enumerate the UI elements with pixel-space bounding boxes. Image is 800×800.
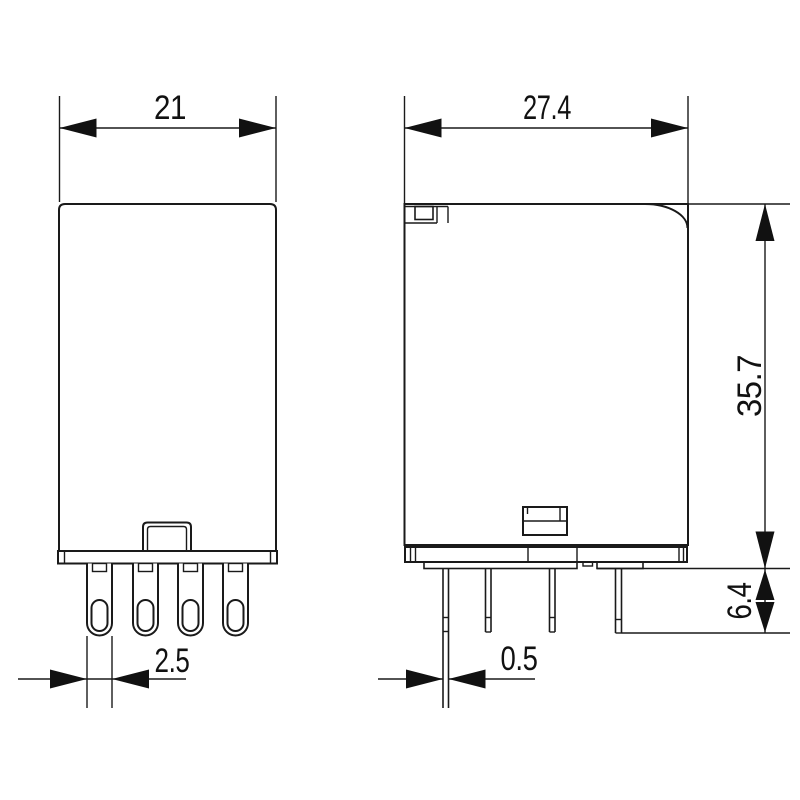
arrowhead-left-icon: [112, 670, 149, 689]
arrowhead-right-icon: [239, 119, 276, 138]
dimension-label-side-width: 27.4: [523, 89, 571, 127]
drawing-canvas: 21: [0, 0, 800, 800]
dimension-label-pin-length: 6.4: [721, 583, 759, 620]
arrowhead-left-icon: [449, 670, 486, 689]
arrowhead-right-icon: [651, 119, 688, 138]
arrowhead-left-icon: [60, 119, 97, 138]
front-view: 21: [18, 89, 277, 708]
side-pins: [443, 569, 622, 709]
arrowhead-right-icon: [50, 670, 87, 689]
dimension-label-front-pin-width: 2.5: [155, 642, 190, 680]
dimension-label-side-pin-thickness: 0.5: [501, 640, 538, 678]
dimension-label-body-height: 35.7: [731, 355, 769, 417]
front-pin: [178, 564, 203, 636]
front-pin: [133, 564, 158, 636]
front-pins: [87, 564, 248, 636]
dimension-front-pin-width: 2.5: [18, 636, 190, 708]
arrowhead-left-icon: [405, 119, 442, 138]
dimension-side-width: 27.4: [405, 89, 689, 203]
arrowhead-down-icon: [756, 532, 775, 569]
side-view: 27.4: [378, 89, 790, 708]
front-pin: [223, 564, 248, 636]
dimension-label-front-width: 21: [154, 89, 186, 127]
side-pin: [486, 569, 492, 633]
front-body-outline: [59, 204, 276, 551]
side-pin: [550, 569, 556, 633]
side-pin: [443, 569, 449, 709]
front-pin: [87, 564, 112, 636]
arrowhead-right-icon: [406, 670, 443, 689]
arrowhead-up-icon: [756, 204, 775, 241]
side-pin: [616, 569, 622, 634]
relay-dimension-drawing: 21: [0, 0, 800, 800]
side-body-outline: [405, 204, 689, 545]
side-base-notch: [583, 562, 593, 566]
front-base-band: [58, 551, 277, 564]
dimension-front-width: 21: [60, 89, 277, 202]
side-base-band: [405, 547, 687, 562]
dimension-side-pin-thickness: 0.5: [378, 640, 538, 689]
dimension-pin-length: 6.4: [622, 569, 791, 634]
side-latch-detail: [523, 507, 567, 535]
